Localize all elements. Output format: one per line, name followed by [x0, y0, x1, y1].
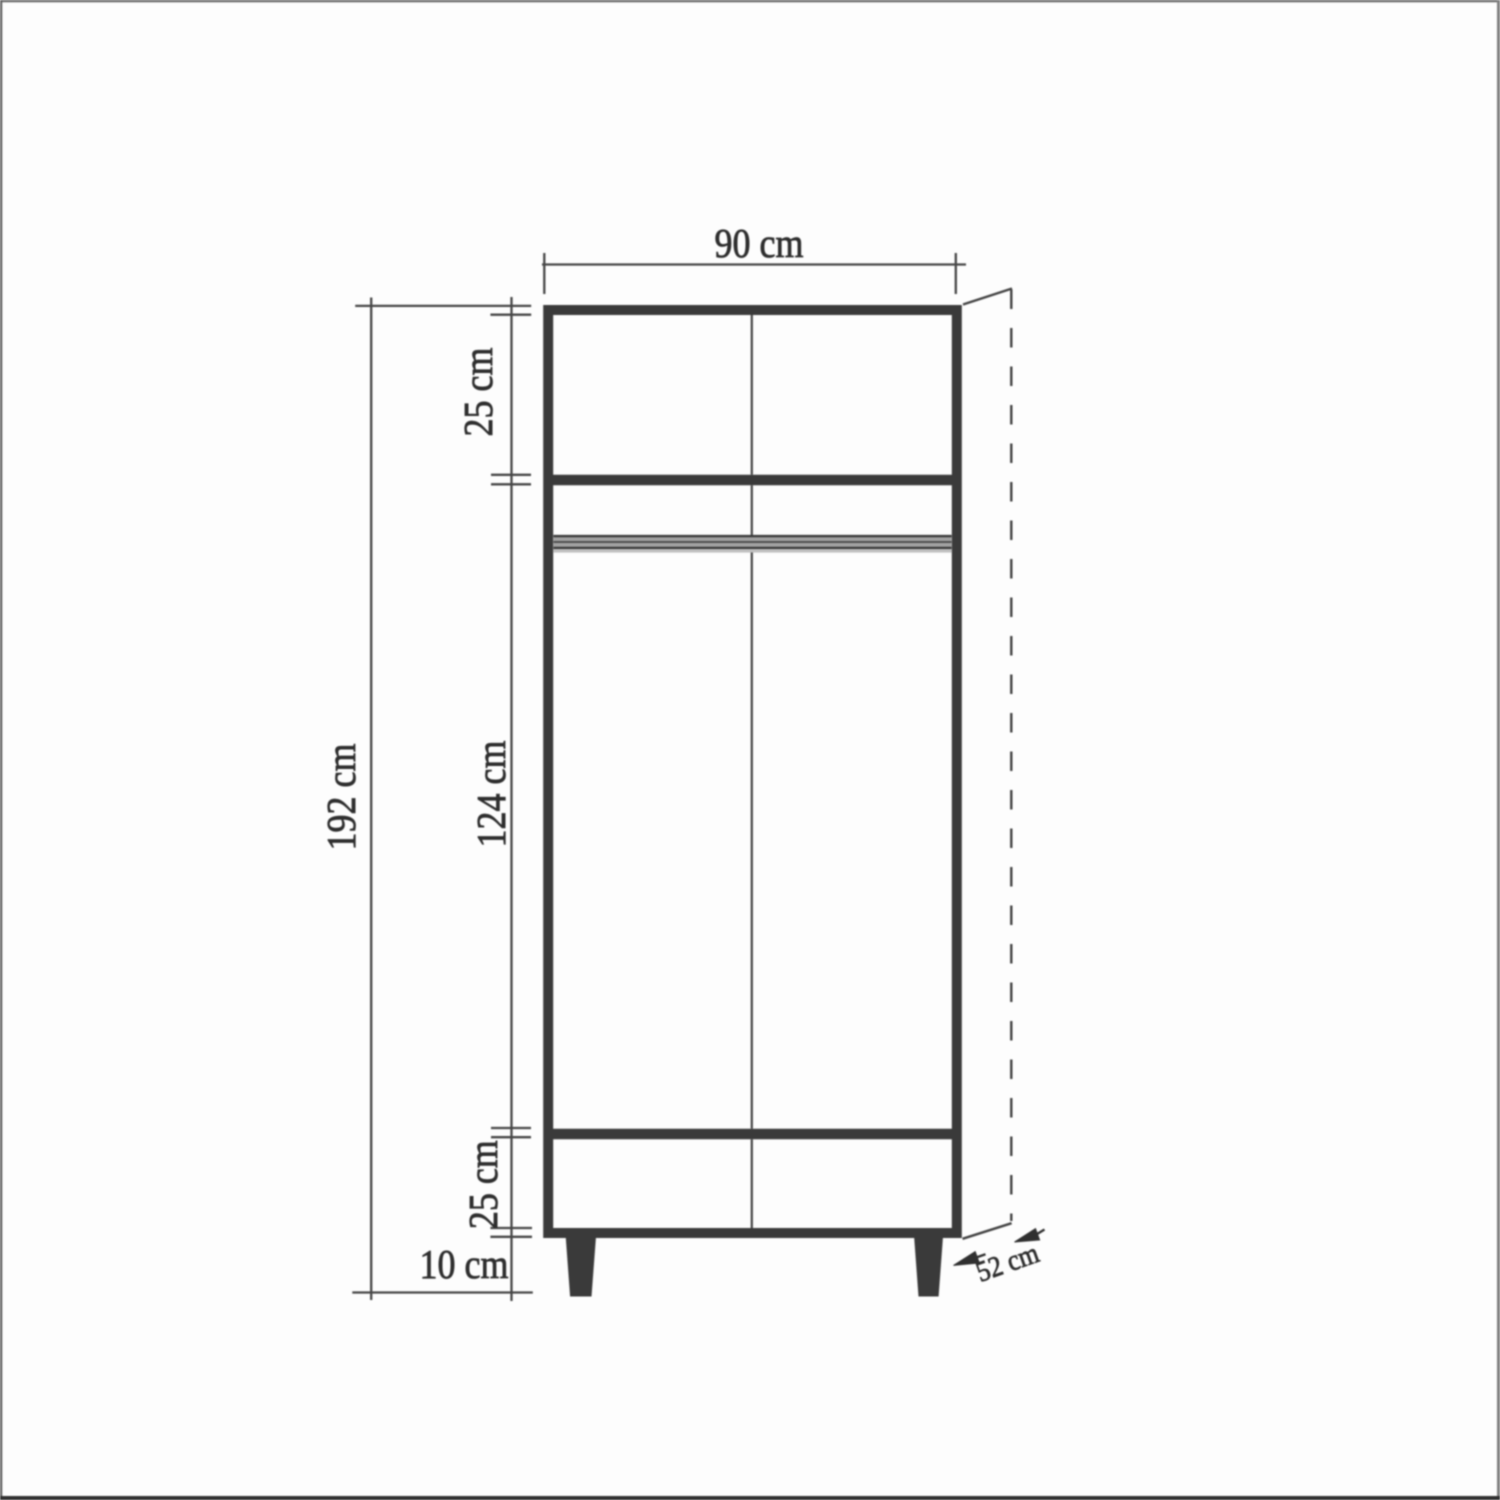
- svg-text:25 cm: 25 cm: [456, 348, 502, 437]
- svg-text:52 cm: 52 cm: [971, 1236, 1043, 1288]
- svg-text:124 cm: 124 cm: [469, 741, 515, 848]
- svg-text:192 cm: 192 cm: [319, 744, 365, 851]
- svg-text:10 cm: 10 cm: [420, 1242, 509, 1288]
- svg-text:90 cm: 90 cm: [715, 221, 804, 267]
- svg-text:25 cm: 25 cm: [461, 1140, 507, 1229]
